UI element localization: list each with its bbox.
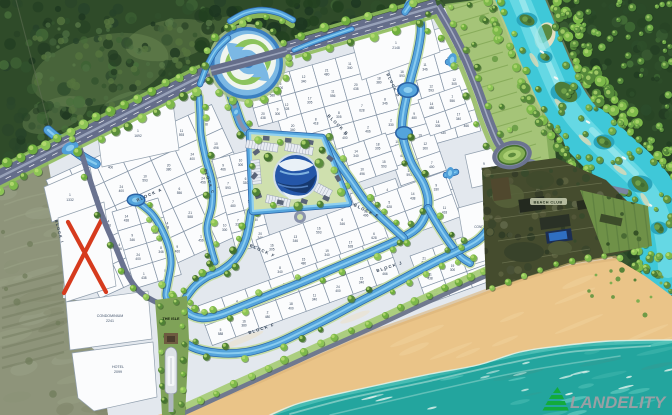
svg-text:480: 480 [230, 204, 236, 208]
svg-text:593: 593 [399, 74, 405, 78]
svg-text:305: 305 [336, 115, 342, 119]
svg-text:438: 438 [353, 87, 359, 91]
svg-text:628: 628 [371, 236, 377, 240]
svg-text:400: 400 [335, 289, 341, 293]
svg-text:593: 593 [316, 231, 322, 235]
svg-text:496: 496 [213, 146, 219, 150]
svg-text:466: 466 [365, 129, 371, 133]
svg-text:480: 480 [265, 315, 271, 319]
svg-text:2148: 2148 [392, 46, 400, 50]
svg-text:400: 400 [429, 165, 435, 169]
svg-text:380: 380 [166, 168, 172, 172]
svg-text:593: 593 [428, 88, 434, 92]
svg-text:340: 340 [456, 117, 462, 121]
svg-text:480: 480 [411, 116, 417, 120]
svg-text:THE ISLE: THE ISLE [162, 317, 180, 321]
svg-text:340: 340 [324, 253, 330, 257]
svg-text:1: 1 [137, 129, 139, 133]
svg-text:400: 400 [342, 136, 348, 140]
svg-text:456: 456 [198, 239, 204, 243]
svg-text:466: 466 [175, 249, 181, 253]
svg-text:400: 400 [190, 157, 196, 161]
svg-text:480: 480 [301, 262, 307, 266]
svg-text:1: 1 [395, 41, 397, 45]
svg-text:330: 330 [388, 123, 394, 127]
svg-text:466: 466 [220, 167, 226, 171]
svg-text:593: 593 [225, 186, 231, 190]
svg-text:438: 438 [141, 276, 147, 280]
svg-text:346: 346 [340, 222, 346, 226]
svg-text:300: 300 [423, 146, 429, 150]
svg-text:CONDOMINIUM: CONDOMINIUM [97, 314, 124, 318]
svg-text:438: 438 [260, 116, 266, 120]
svg-text:340: 340 [353, 154, 359, 158]
svg-text:346: 346 [293, 239, 299, 243]
svg-text:456: 456 [200, 180, 206, 184]
svg-text:400: 400 [288, 306, 294, 310]
svg-text:346: 346 [382, 102, 388, 106]
svg-text:HOTEL: HOTEL [112, 365, 124, 369]
svg-text:340: 340 [301, 79, 307, 83]
svg-text:400: 400 [108, 165, 114, 169]
svg-text:346: 346 [422, 67, 428, 71]
svg-text:BEACH CLUB: BEACH CLUB [533, 201, 562, 205]
svg-text:9: 9 [483, 162, 485, 166]
svg-text:330: 330 [434, 188, 440, 192]
svg-text:628: 628 [348, 245, 354, 249]
svg-text:593: 593 [142, 178, 148, 182]
svg-text:346: 346 [130, 238, 136, 242]
svg-text:300: 300 [275, 112, 281, 116]
svg-text:588: 588 [218, 332, 224, 336]
svg-text:400: 400 [135, 257, 141, 261]
svg-text:628: 628 [359, 108, 365, 112]
svg-text:340: 340 [312, 298, 318, 302]
svg-text:346: 346 [158, 250, 164, 254]
svg-text:593: 593 [179, 133, 185, 137]
svg-text:480: 480 [429, 106, 435, 110]
svg-text:466: 466 [382, 272, 388, 276]
svg-text:LANDELITY: LANDELITY [570, 393, 667, 412]
svg-text:588: 588 [188, 215, 194, 219]
svg-text:330: 330 [243, 181, 249, 185]
svg-text:628: 628 [387, 205, 393, 209]
svg-text:1332: 1332 [66, 198, 74, 202]
svg-text:1: 1 [69, 193, 71, 197]
svg-text:438: 438 [410, 196, 416, 200]
svg-text:418: 418 [313, 122, 319, 126]
svg-text:593: 593 [381, 164, 387, 168]
svg-text:556: 556 [450, 99, 456, 103]
svg-text:496: 496 [359, 172, 365, 176]
svg-text:340: 340 [290, 128, 296, 132]
svg-text:466: 466 [464, 124, 470, 128]
svg-text:380: 380 [241, 323, 247, 327]
svg-text:305: 305 [452, 82, 458, 86]
svg-text:340: 340 [347, 66, 353, 70]
svg-text:1692: 1692 [134, 134, 142, 138]
svg-text:340: 340 [277, 270, 283, 274]
svg-text:2241: 2241 [106, 319, 114, 323]
svg-text:305: 305 [435, 124, 441, 128]
svg-text:300: 300 [222, 228, 228, 232]
svg-text:556: 556 [330, 94, 336, 98]
svg-text:305: 305 [307, 100, 313, 104]
svg-text:2099: 2099 [114, 370, 122, 374]
svg-text:438: 438 [124, 219, 130, 223]
svg-text:305: 305 [375, 146, 381, 150]
svg-text:380: 380 [376, 81, 382, 85]
svg-text:556: 556 [177, 191, 183, 195]
svg-text:400: 400 [119, 189, 125, 193]
svg-text:340: 340 [359, 281, 365, 285]
svg-text:300: 300 [450, 268, 456, 272]
svg-text:418: 418 [442, 210, 448, 214]
svg-text:480: 480 [324, 73, 330, 77]
svg-text:300: 300 [238, 163, 244, 167]
